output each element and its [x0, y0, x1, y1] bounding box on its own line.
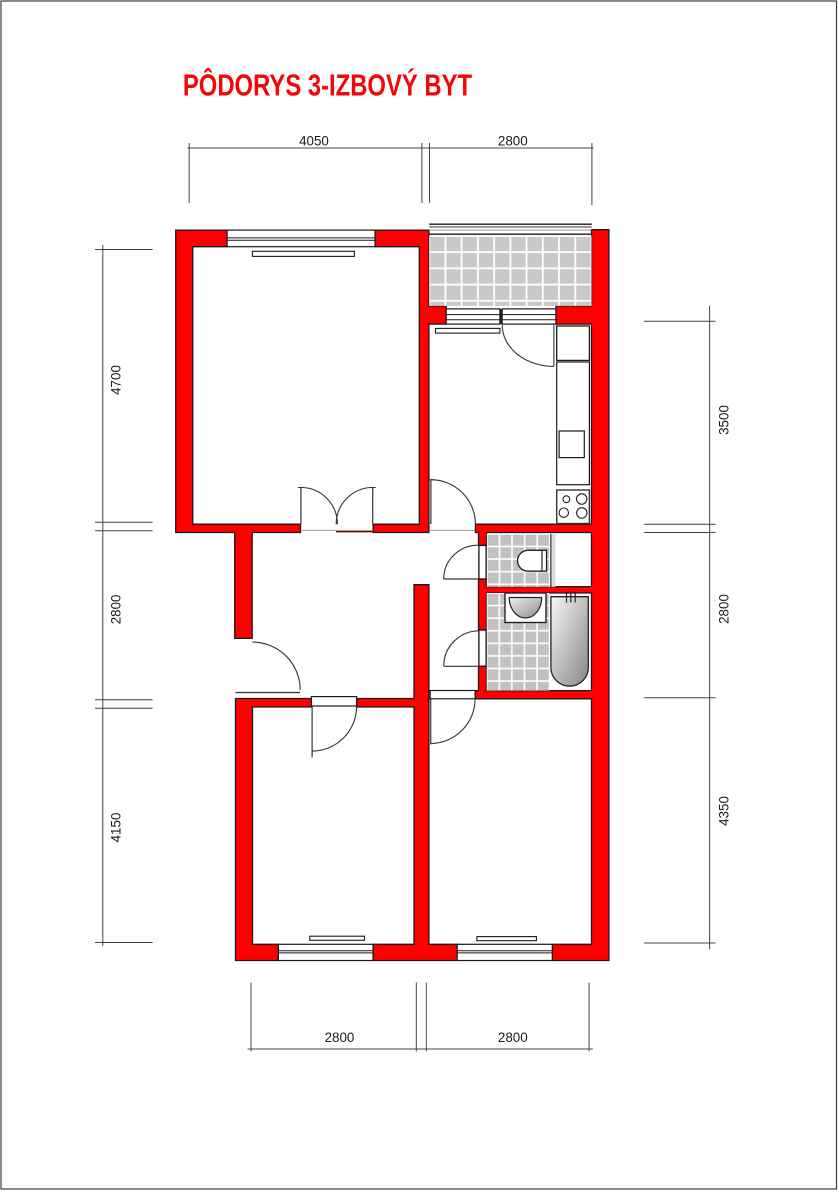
svg-text:3500: 3500	[716, 405, 731, 435]
svg-text:4350: 4350	[716, 796, 731, 826]
svg-text:2800: 2800	[716, 594, 731, 624]
svg-text:2800: 2800	[498, 1030, 528, 1045]
svg-text:2800: 2800	[325, 1030, 355, 1045]
svg-text:2800: 2800	[498, 133, 528, 148]
svg-text:2800: 2800	[108, 595, 123, 625]
svg-text:4050: 4050	[299, 133, 329, 148]
svg-text:4700: 4700	[108, 365, 123, 395]
svg-text:PÔDORYS 3-IZBOVÝ BYT: PÔDORYS 3-IZBOVÝ BYT	[183, 67, 472, 103]
svg-text:4150: 4150	[108, 813, 123, 843]
